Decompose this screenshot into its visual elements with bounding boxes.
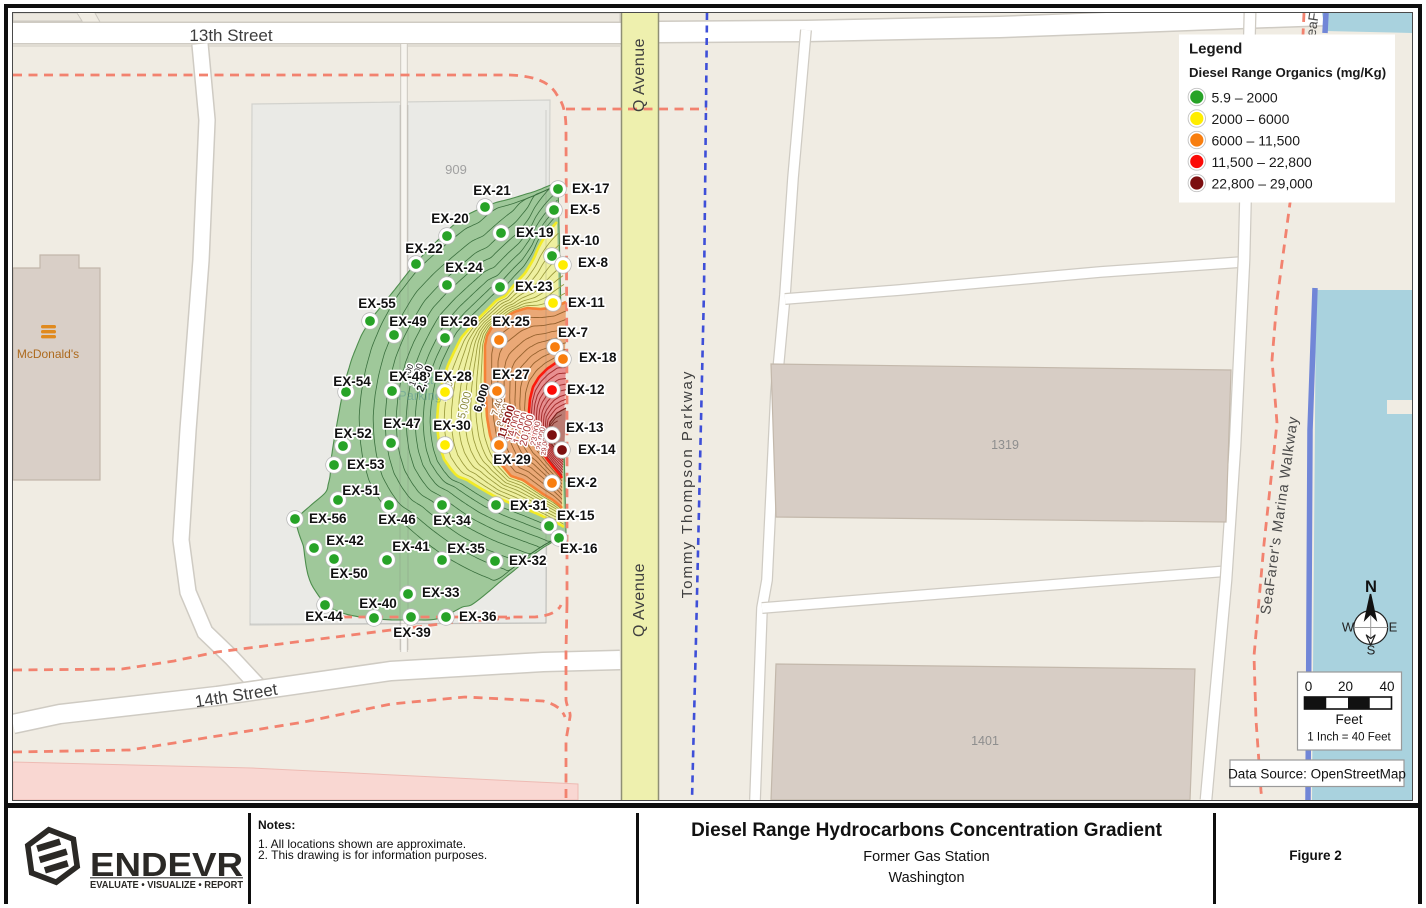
svg-text:1 Inch = 40 Feet: 1 Inch = 40 Feet [1307,732,1391,744]
svg-text:EX-19: EX-19 [516,225,554,240]
svg-text:11,500 – 22,800: 11,500 – 22,800 [1212,154,1312,170]
svg-text:EX-12: EX-12 [567,382,605,397]
svg-text:5.9 – 2000: 5.9 – 2000 [1212,89,1278,105]
svg-text:Q Avenue: Q Avenue [631,563,648,637]
svg-text:EX-27: EX-27 [492,367,530,382]
svg-text:EX-47: EX-47 [383,416,421,431]
svg-text:EX-52: EX-52 [334,426,372,441]
svg-text:EX-55: EX-55 [358,296,396,311]
svg-text:Tommy Thompson Parkway: Tommy Thompson Parkway [679,370,696,599]
svg-text:EX-46: EX-46 [378,512,416,527]
svg-text:EX-11: EX-11 [568,295,605,310]
svg-text:EX-51: EX-51 [342,483,380,498]
svg-text:EX-42: EX-42 [326,533,364,548]
svg-text:EX-40: EX-40 [359,596,397,611]
svg-text:EX-22: EX-22 [405,241,443,256]
svg-text:EX-28: EX-28 [434,369,472,384]
svg-text:EX-41: EX-41 [392,539,430,554]
svg-text:909: 909 [445,162,467,177]
svg-text:EX-20: EX-20 [431,211,469,226]
svg-text:EX-33: EX-33 [422,585,460,600]
svg-text:EX-15: EX-15 [557,508,595,523]
svg-text:N: N [1365,578,1377,596]
svg-text:EX-8: EX-8 [578,255,609,270]
svg-text:Diesel Range Organics (mg/Kg): Diesel Range Organics (mg/Kg) [1189,65,1386,80]
svg-text:EX-49: EX-49 [389,314,427,329]
svg-text:EX-54: EX-54 [333,374,371,389]
svg-text:EX-17: EX-17 [572,181,610,196]
svg-text:Data Source: OpenStreetMap: Data Source: OpenStreetMap [1228,767,1406,782]
svg-text:S: S [1367,643,1376,658]
svg-text:6000 – 11,500: 6000 – 11,500 [1212,132,1301,148]
svg-text:EX-29: EX-29 [493,452,531,467]
svg-text:EX-56: EX-56 [309,511,347,526]
svg-text:EX-32: EX-32 [509,553,547,568]
svg-text:EX-13: EX-13 [566,420,604,435]
svg-text:EX-35: EX-35 [447,541,485,556]
svg-text:Q Avenue: Q Avenue [631,38,648,112]
svg-text:2000 – 6000: 2000 – 6000 [1212,111,1290,127]
svg-text:EX-30: EX-30 [433,418,471,433]
svg-text:EX-36: EX-36 [459,609,497,624]
svg-text:1401: 1401 [971,734,999,748]
svg-text:E: E [1389,620,1398,635]
svg-text:Legend: Legend [1189,41,1242,58]
svg-text:EX-25: EX-25 [492,314,530,329]
svg-text:EX-53: EX-53 [347,457,385,472]
svg-text:22,800 – 29,000: 22,800 – 29,000 [1212,175,1313,191]
svg-text:EX-39: EX-39 [393,625,431,640]
svg-text:EX-14: EX-14 [578,442,616,457]
svg-text:EX-44: EX-44 [305,609,343,624]
svg-text:EX-5: EX-5 [570,202,601,217]
svg-text:EX-16: EX-16 [560,541,598,556]
svg-text:40: 40 [1379,679,1394,694]
svg-text:EX-31: EX-31 [510,498,548,513]
svg-text:1319: 1319 [991,438,1019,452]
svg-text:W: W [1342,620,1355,635]
svg-text:EX-18: EX-18 [579,350,617,365]
svg-text:EX-34: EX-34 [433,513,471,528]
svg-text:EX-7: EX-7 [558,325,588,340]
svg-text:0: 0 [1305,679,1313,694]
svg-text:EX-10: EX-10 [562,233,600,248]
svg-text:EX-2: EX-2 [567,475,597,490]
svg-text:EVALUATE • VISUALIZE • REPORT: EVALUATE • VISUALIZE • REPORT [90,880,243,891]
svg-text:13th Street: 13th Street [189,26,272,45]
svg-text:McDonald's: McDonald's [17,347,79,361]
svg-text:EX-26: EX-26 [440,314,478,329]
svg-text:EX-21: EX-21 [473,183,511,198]
svg-text:EX-24: EX-24 [445,260,483,275]
svg-text:20: 20 [1338,679,1353,694]
svg-text:EX-23: EX-23 [515,279,553,294]
svg-text:EX-48: EX-48 [389,369,427,384]
svg-text:Feet: Feet [1335,712,1362,727]
svg-text:EX-50: EX-50 [330,566,368,581]
